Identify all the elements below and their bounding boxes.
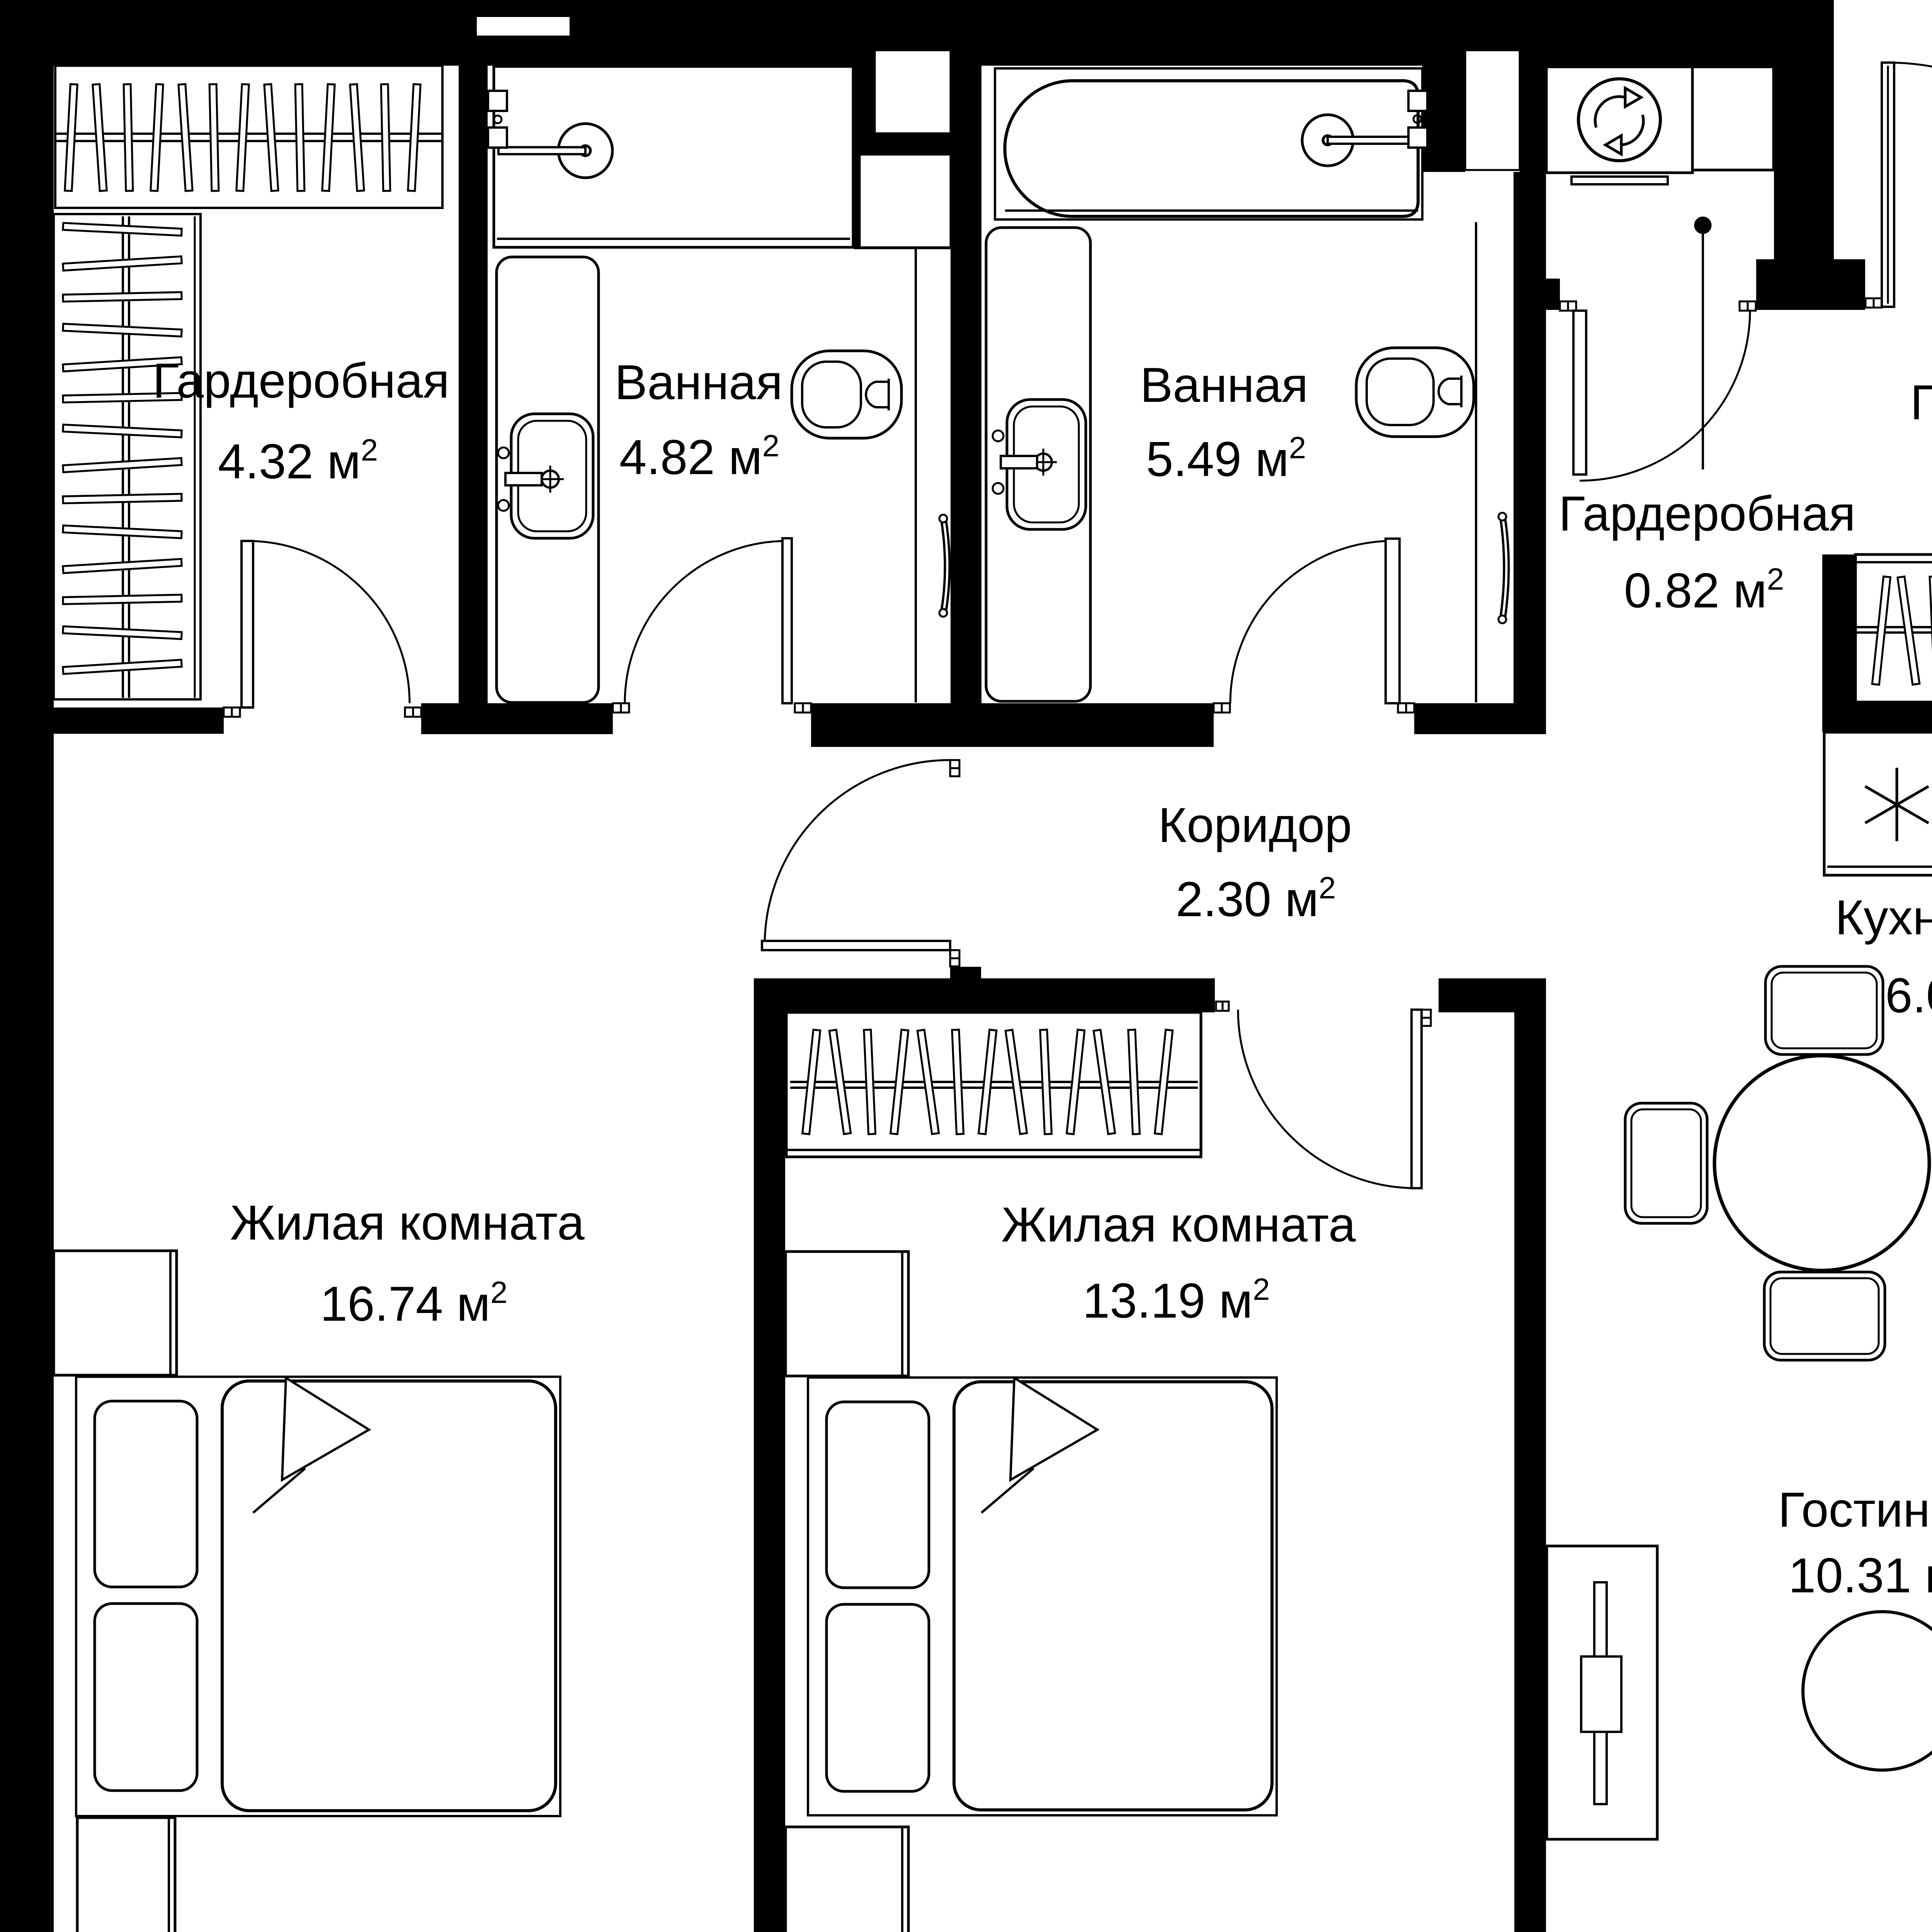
svg-text:Гардеробная: Гардеробная	[1559, 486, 1855, 541]
svg-text:4.82 м2: 4.82 м2	[619, 429, 779, 485]
svg-text:Коридор: Коридор	[1158, 798, 1352, 852]
svg-text:Жилая комната: Жилая комната	[1001, 1197, 1356, 1252]
svg-text:Ванная: Ванная	[1140, 357, 1308, 412]
svg-text:Ванная: Ванная	[614, 355, 782, 410]
svg-text:0.82 м2: 0.82 м2	[1624, 562, 1784, 618]
svg-text:Прихожая: Прихожая	[1910, 375, 1932, 430]
svg-text:Гостиная: Гостиная	[1778, 1482, 1932, 1537]
svg-text:5.49 м2: 5.49 м2	[1146, 430, 1306, 486]
svg-text:2.30 м2: 2.30 м2	[1176, 871, 1336, 927]
svg-text:Кухня-ниша: Кухня-ниша	[1835, 890, 1932, 945]
svg-text:10.31 м2: 10.31 м2	[1789, 1547, 1932, 1603]
svg-text:16.74 м2: 16.74 м2	[320, 1275, 508, 1331]
svg-text:4.32 м2: 4.32 м2	[218, 433, 378, 489]
svg-text:Гардеробная: Гардеробная	[153, 353, 449, 408]
svg-text:6.02 м2: 6.02 м2	[1885, 967, 1932, 1023]
svg-text:Жилая комната: Жилая комната	[230, 1195, 585, 1250]
svg-text:13.19 м2: 13.19 м2	[1083, 1272, 1270, 1328]
